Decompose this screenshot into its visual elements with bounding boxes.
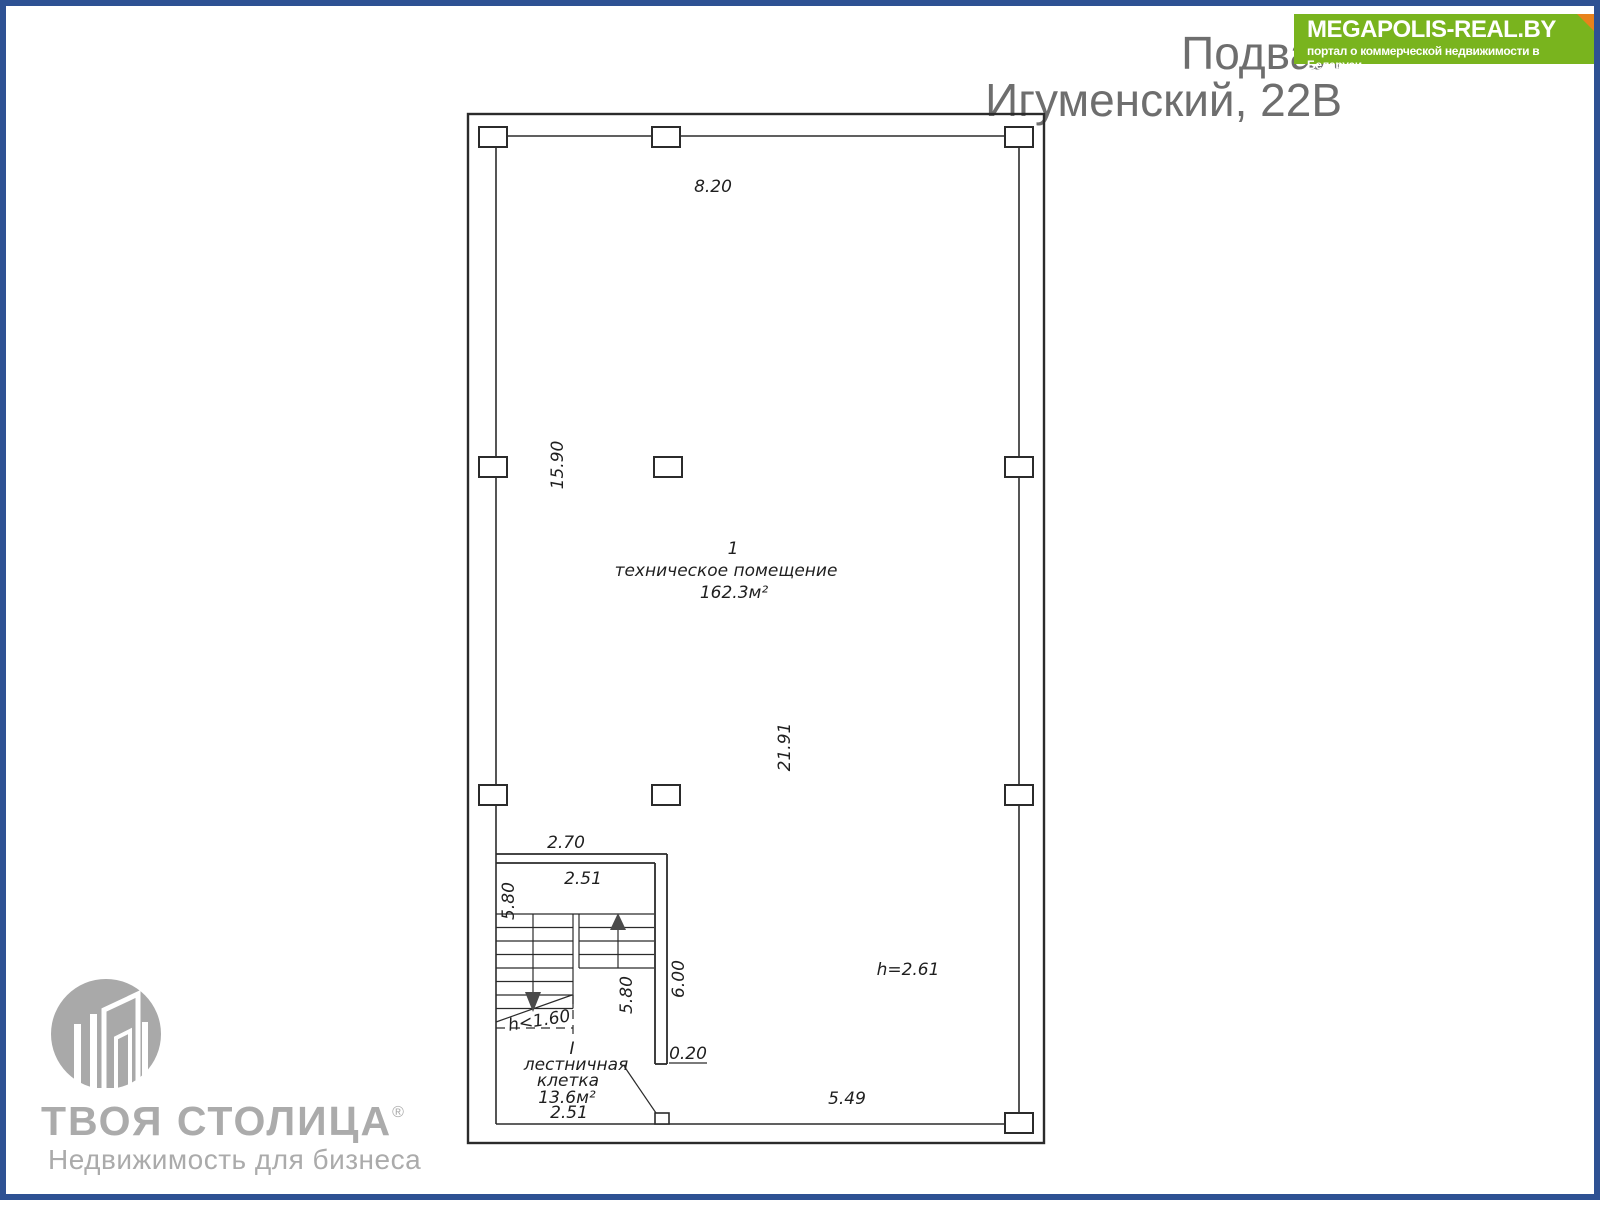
- dim-wall-opening: 0.20: [669, 1044, 707, 1064]
- door-marker: [655, 1113, 669, 1124]
- megapolis-badge: MEGAPOLIS-REAL.BY портал о коммерческой …: [1294, 14, 1594, 64]
- dim-stair-left-height: 5.80: [499, 882, 519, 920]
- annotation-lines: [624, 1063, 707, 1113]
- badge-portal-tagline: портал о коммерческой недвижимости в Бел…: [1307, 44, 1594, 72]
- room-main-number: 1: [728, 539, 739, 559]
- dim-inner-height: 21.91: [775, 723, 795, 772]
- note-under-stair-height: h<1.60: [507, 1006, 572, 1036]
- room-main-name: техническое помещение: [615, 561, 838, 581]
- dim-stair-wall-height: 6.00: [669, 960, 689, 998]
- badge-portal-name: MEGAPOLIS-REAL.BY: [1307, 17, 1594, 43]
- dim-top-width: 8.20: [694, 177, 732, 197]
- note-ceiling-height: h=2.61: [877, 960, 940, 980]
- dim-stair-inner-height: 5.80: [617, 976, 637, 1014]
- dim-left-height: 15.90: [548, 441, 568, 490]
- dim-stair-outer-width: 2.70: [547, 833, 585, 853]
- room-main-area: 162.3м²: [700, 583, 768, 603]
- room-stairs-area: 13.6м²: [538, 1088, 596, 1108]
- floor-plan-drawing: 8.20 15.90 21.91 2.70 2.51 5.80 5.80 6.0…: [6, 6, 1600, 1206]
- dim-bottom-width: 5.49: [828, 1089, 866, 1109]
- plan-walls: [468, 114, 1044, 1143]
- scanned-floorplan-page: Подвал Игуменский, 22В MEGAPOLIS-REAL.BY…: [0, 0, 1600, 1200]
- dim-stair-inner-width: 2.51: [564, 869, 602, 889]
